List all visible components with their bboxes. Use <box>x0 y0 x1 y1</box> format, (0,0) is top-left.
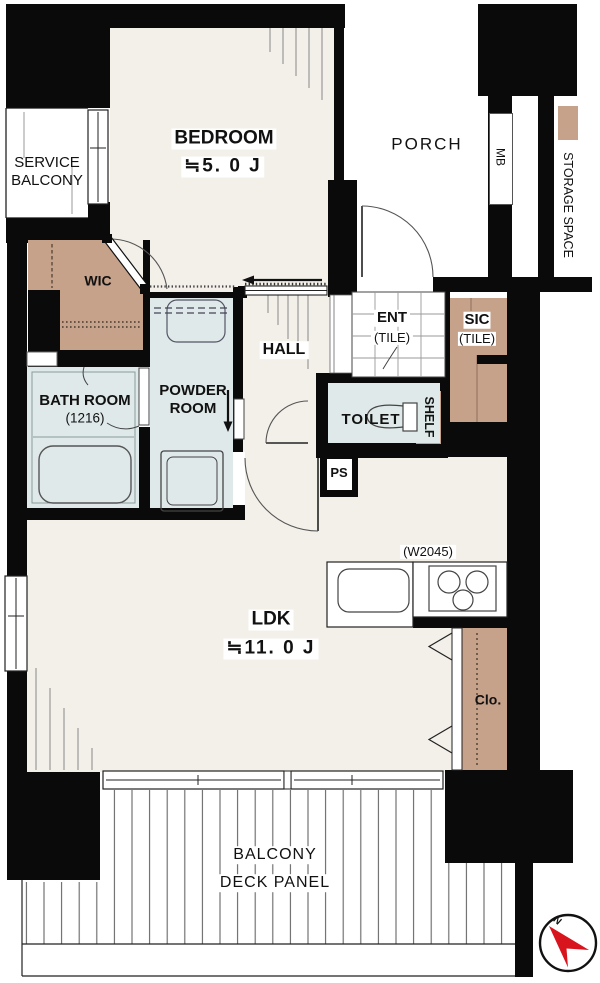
room-label-powder-line2: ROOM <box>170 401 217 418</box>
room-size-ldk: ≒11. 0 J <box>224 639 319 660</box>
wall <box>7 772 100 880</box>
room-label-toilet: TOILET <box>341 412 400 429</box>
shelf-label: SHELF <box>421 397 435 438</box>
room-label-ent: ENT <box>374 310 410 327</box>
closet-label: Clo. <box>475 692 501 707</box>
wall <box>88 202 110 220</box>
storage-space-legend-label: STORAGE SPACE <box>560 152 574 258</box>
wall <box>328 180 357 297</box>
wall <box>60 350 143 367</box>
compass-north-label: N <box>551 914 564 927</box>
meter-box-label: MB <box>493 148 506 166</box>
floor-plan: SERVICE BALCONY BEDROOM ≒5. 0 J PORCH MB… <box>0 0 600 983</box>
room-sub-ent: (TILE) <box>371 331 413 345</box>
compass-north-icon <box>540 915 596 971</box>
balcony-window <box>103 771 443 789</box>
ldk-floor-upper <box>245 450 507 518</box>
wall <box>7 243 27 772</box>
room-label-bedroom: BEDROOM <box>171 129 276 150</box>
room-label-service-balcony-line2: BALCONY <box>11 173 83 190</box>
wall <box>515 863 533 977</box>
wic-area <box>28 240 60 290</box>
room-label-powder-line1: POWDER <box>159 383 227 400</box>
wall <box>238 286 247 298</box>
wall <box>507 292 540 770</box>
leader-lines <box>383 347 397 369</box>
ps-label: PS <box>330 466 347 480</box>
wall <box>28 290 60 373</box>
room-sub-sic: (TILE) <box>458 332 496 346</box>
wall <box>334 4 344 182</box>
storage-legend-swatch <box>558 106 578 140</box>
room-size-bathroom: (1216) <box>65 412 104 427</box>
room-label-porch: PORCH <box>391 136 462 155</box>
wall <box>445 770 573 863</box>
entrance-door-swing <box>362 206 433 277</box>
room-label-sic: SIC <box>463 312 490 329</box>
wall <box>478 4 577 96</box>
kitchen-width-label: (W2045) <box>400 545 456 559</box>
wic-area <box>60 240 143 350</box>
room-label-wic: WIC <box>84 273 111 288</box>
wall <box>139 427 150 510</box>
wall <box>233 287 243 452</box>
room-size-bedroom: ≒5. 0 J <box>181 157 264 178</box>
room-label-service-balcony-line1: SERVICE <box>14 155 80 172</box>
wall <box>413 617 507 628</box>
room-label-hall: HALL <box>260 341 309 359</box>
wall <box>433 277 592 292</box>
wall <box>6 4 110 108</box>
room-label-ldk: LDK <box>248 610 293 631</box>
balcony-label-line2: DECK PANEL <box>217 874 333 892</box>
bathroom-floor <box>27 367 139 508</box>
wall <box>538 96 554 277</box>
room-label-bathroom: BATH ROOM <box>39 393 130 410</box>
balcony-label-line1: BALCONY <box>230 846 319 864</box>
wall <box>445 422 507 457</box>
